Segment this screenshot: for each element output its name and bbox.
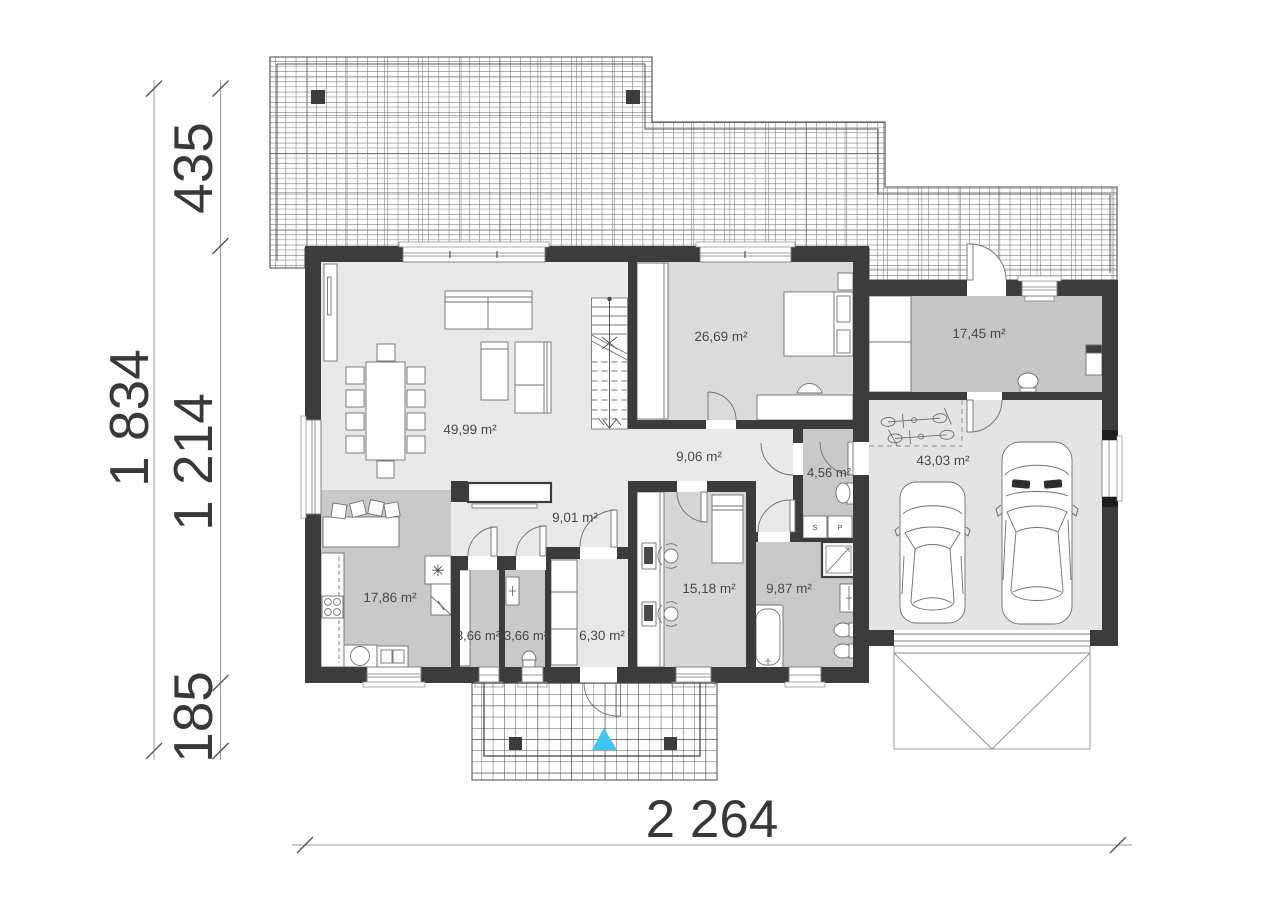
svg-text:9,87 m²: 9,87 m² <box>766 581 812 596</box>
svg-text:1 214: 1 214 <box>162 393 224 531</box>
svg-text:15,18 m²: 15,18 m² <box>682 581 736 596</box>
svg-text:26,69 m²: 26,69 m² <box>694 329 748 344</box>
svg-text:9,01 m²: 9,01 m² <box>552 510 598 525</box>
svg-text:435: 435 <box>162 122 224 214</box>
svg-text:6,30 m²: 6,30 m² <box>579 628 625 643</box>
svg-text:3,66 m²: 3,66 m² <box>504 628 549 643</box>
svg-text:P: P <box>837 523 842 532</box>
svg-text:43,03 m²: 43,03 m² <box>916 453 970 468</box>
svg-text:1 834: 1 834 <box>98 349 160 487</box>
svg-text:49,99 m²: 49,99 m² <box>443 422 497 437</box>
svg-text:9,06 m²: 9,06 m² <box>676 449 722 464</box>
svg-text:17,86 m²: 17,86 m² <box>363 590 417 605</box>
svg-text:✳: ✳ <box>431 563 444 580</box>
svg-text:S: S <box>812 523 817 532</box>
svg-text:4,56 m²: 4,56 m² <box>807 465 852 480</box>
svg-text:3,66 m²: 3,66 m² <box>456 628 501 643</box>
svg-text:185: 185 <box>162 671 224 763</box>
svg-text:2 264: 2 264 <box>646 790 779 849</box>
svg-text:17,45 m²: 17,45 m² <box>952 326 1006 341</box>
